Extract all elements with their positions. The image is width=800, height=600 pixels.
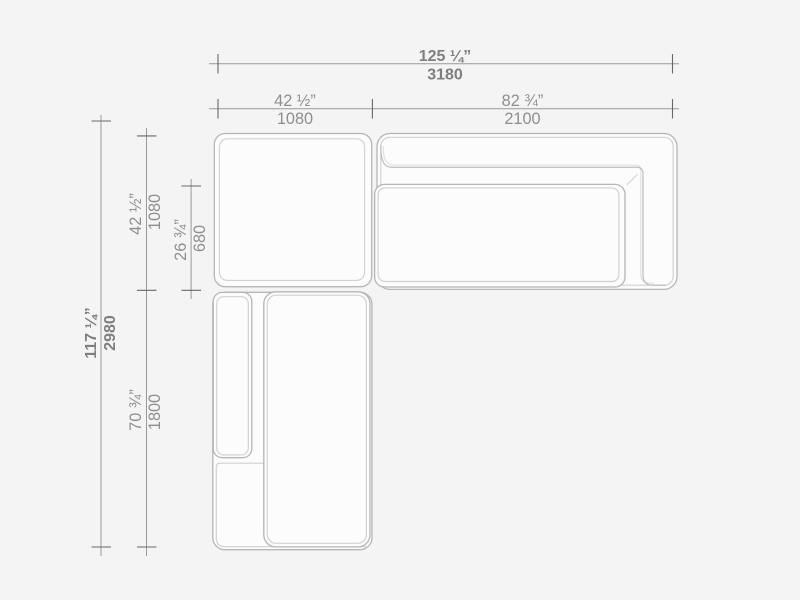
svg-text:42 ½”: 42 ½” (127, 193, 145, 235)
svg-text:125 ¼”: 125 ¼” (419, 48, 471, 65)
svg-text:680: 680 (191, 225, 209, 252)
svg-text:117 ¼”: 117 ¼” (83, 307, 100, 359)
svg-text:26 ¾”: 26 ¾” (172, 219, 190, 261)
svg-text:1080: 1080 (146, 194, 164, 230)
svg-text:1080: 1080 (277, 110, 313, 128)
svg-text:70 ¾”: 70 ¾” (127, 389, 145, 431)
svg-text:2980: 2980 (102, 315, 119, 351)
svg-text:82 ¾”: 82 ¾” (502, 92, 544, 110)
svg-text:42 ½”: 42 ½” (274, 92, 316, 110)
svg-text:2100: 2100 (504, 110, 540, 128)
svg-text:1800: 1800 (146, 394, 164, 430)
svg-text:3180: 3180 (427, 67, 463, 84)
